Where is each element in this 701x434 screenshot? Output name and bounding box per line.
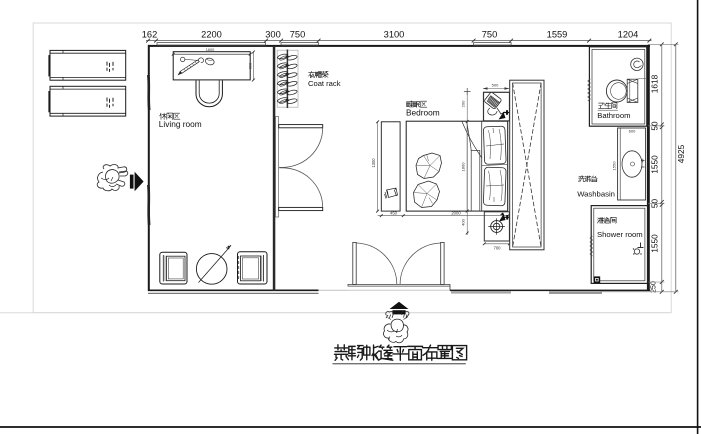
- svg-text:1600: 1600: [206, 48, 214, 52]
- svg-text:Washbasin: Washbasin: [577, 190, 615, 199]
- svg-text:3100: 3100: [384, 30, 405, 40]
- svg-text:2000: 2000: [451, 210, 461, 215]
- svg-text:1618: 1618: [650, 74, 660, 93]
- svg-text:Coat rack: Coat rack: [308, 79, 341, 88]
- svg-text:1300: 1300: [371, 158, 376, 168]
- svg-text:4925: 4925: [676, 144, 686, 163]
- svg-text:1204: 1204: [618, 30, 639, 40]
- svg-text:450: 450: [390, 210, 398, 215]
- svg-text:250: 250: [651, 281, 658, 293]
- svg-text:2200: 2200: [201, 30, 222, 40]
- svg-text:400: 400: [460, 218, 465, 225]
- svg-text:750: 750: [290, 30, 306, 40]
- svg-text:300: 300: [265, 30, 281, 40]
- svg-text:Living room: Living room: [159, 119, 202, 129]
- svg-text:700: 700: [494, 245, 502, 250]
- svg-text:500: 500: [492, 82, 499, 87]
- svg-text:1550: 1550: [650, 155, 660, 174]
- svg-text:750: 750: [482, 30, 498, 40]
- svg-text:600: 600: [249, 63, 253, 69]
- svg-text:Bedroom: Bedroom: [406, 108, 440, 118]
- svg-text:200: 200: [460, 100, 465, 107]
- svg-text:Shower room: Shower room: [597, 230, 643, 239]
- svg-text:Bathroom: Bathroom: [597, 111, 630, 120]
- svg-text:1550: 1550: [612, 161, 617, 171]
- svg-text:1800: 1800: [460, 162, 465, 172]
- svg-text:162: 162: [142, 30, 158, 40]
- svg-text:1550: 1550: [650, 234, 660, 253]
- svg-text:1559: 1559: [547, 30, 568, 40]
- svg-text:600: 600: [629, 129, 636, 134]
